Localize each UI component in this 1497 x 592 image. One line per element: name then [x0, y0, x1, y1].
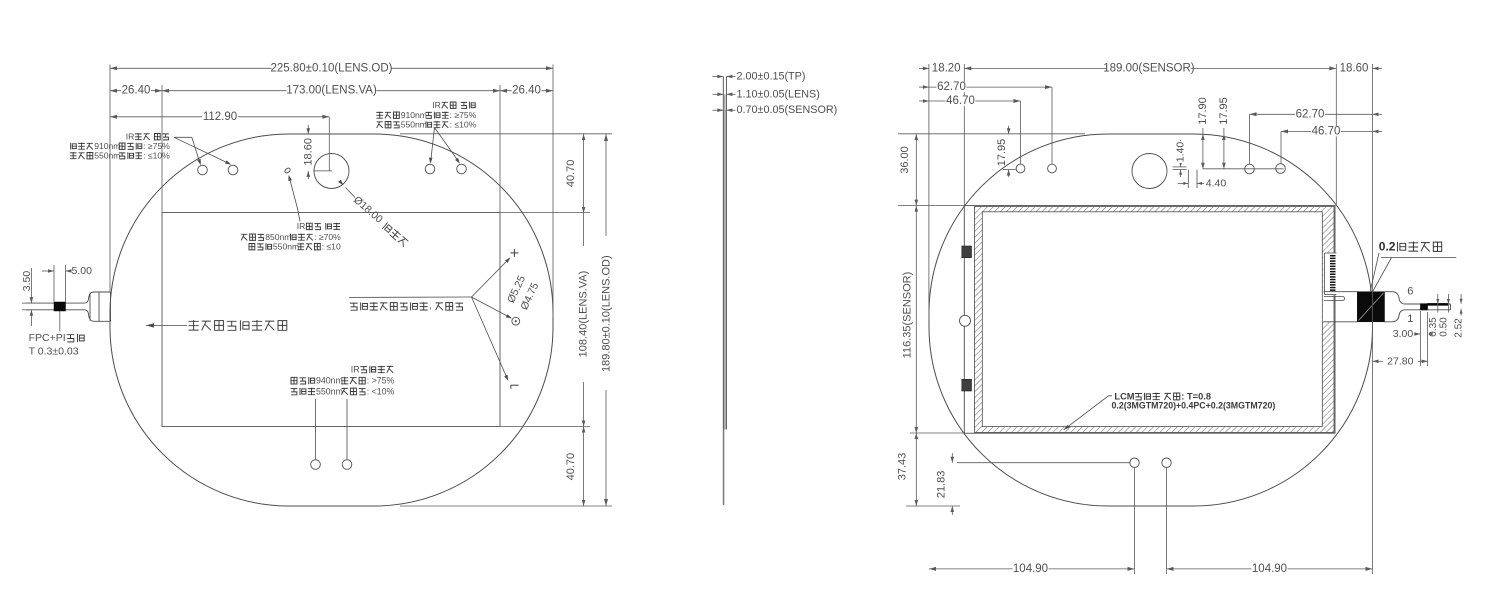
svg-text:T 0.3±0.03: T 0.3±0.03 [29, 346, 79, 358]
svg-text:27.80: 27.80 [1387, 355, 1413, 367]
svg-text:17.95: 17.95 [1218, 97, 1230, 125]
svg-text:46.70: 46.70 [1312, 125, 1341, 137]
svg-text:910nm: 910nm [401, 110, 427, 120]
svg-text:3.00: 3.00 [1393, 328, 1414, 340]
svg-text:112.90: 112.90 [203, 111, 237, 123]
svg-text:IR: IR [297, 221, 306, 231]
svg-text:116.35(SENSOR): 116.35(SENSOR) [901, 272, 913, 359]
svg-text:104.90: 104.90 [1252, 563, 1287, 575]
svg-text:46.70: 46.70 [946, 95, 975, 107]
svg-text:40.70: 40.70 [565, 160, 577, 188]
svg-text:940nm: 940nm [316, 376, 343, 386]
svg-text:850nm: 850nm [265, 232, 291, 242]
svg-text:18.20: 18.20 [932, 62, 961, 74]
svg-text:,: , [429, 301, 432, 312]
svg-text:0.70±0.05(SENSOR): 0.70±0.05(SENSOR) [737, 104, 838, 116]
svg-text:1.10±0.05(LENS): 1.10±0.05(LENS) [737, 88, 820, 100]
svg-text:173.00(LENS.VA): 173.00(LENS.VA) [286, 85, 377, 97]
svg-text:18.60: 18.60 [302, 138, 314, 166]
svg-text:: ≥75%: : ≥75% [450, 110, 477, 120]
svg-text:6: 6 [1407, 286, 1413, 298]
svg-text:: ≤10: : ≤10 [322, 242, 341, 252]
svg-text:104.90: 104.90 [1013, 563, 1048, 575]
svg-text:17.90: 17.90 [1197, 97, 1209, 125]
svg-text:3.50: 3.50 [21, 271, 33, 292]
svg-text:: <10%: : <10% [367, 386, 395, 396]
svg-text:0.2: 0.2 [1379, 240, 1396, 254]
svg-text:18.60: 18.60 [1340, 62, 1369, 74]
svg-text:IR: IR [126, 132, 135, 142]
svg-text:: ≤10%: : ≤10% [450, 120, 477, 130]
svg-text:37.43: 37.43 [897, 453, 909, 481]
svg-text:0.35: 0.35 [1428, 317, 1439, 337]
svg-text:2.52: 2.52 [1453, 318, 1464, 338]
svg-text:17.95: 17.95 [996, 139, 1008, 167]
svg-text:0.2(3MGTM720)+0.4PC+0.2(3MGTM7: 0.2(3MGTM720)+0.4PC+0.2(3MGTM720) [1112, 401, 1276, 411]
svg-text:225.80±0.10(LENS.OD): 225.80±0.10(LENS.OD) [270, 62, 392, 74]
svg-text:550nm: 550nm [401, 120, 427, 130]
svg-text:: ≥70%: : ≥70% [314, 232, 341, 242]
svg-text:62.70: 62.70 [1296, 108, 1325, 120]
svg-text:1.40: 1.40 [1175, 142, 1187, 163]
svg-text:IR: IR [432, 100, 441, 110]
svg-text:189.00(SENSOR): 189.00(SENSOR) [1103, 62, 1195, 74]
svg-text:108.40(LENS.VA): 108.40(LENS.VA) [578, 271, 590, 358]
svg-text:2.00±0.15(TP): 2.00±0.15(TP) [737, 71, 806, 83]
svg-text:0.50: 0.50 [1439, 317, 1450, 337]
svg-text:550nm: 550nm [273, 242, 299, 252]
svg-text:189.80±0.10(LENS.OD): 189.80±0.10(LENS.OD) [601, 255, 613, 372]
svg-text:: ≤10%: : ≤10% [143, 151, 170, 161]
svg-text:1: 1 [1407, 313, 1413, 325]
svg-text:910nm: 910nm [94, 141, 120, 151]
svg-text:FPC+PI: FPC+PI [29, 332, 66, 344]
svg-text:21.83: 21.83 [936, 471, 948, 499]
svg-text:: ≥75%: : ≥75% [143, 141, 170, 151]
svg-text:550nm: 550nm [316, 386, 343, 396]
svg-text:26.40: 26.40 [122, 85, 151, 97]
svg-text:: >75%: : >75% [367, 376, 395, 386]
svg-text:IR: IR [351, 364, 360, 374]
svg-text:62.70: 62.70 [937, 81, 966, 93]
svg-text:36.00: 36.00 [899, 146, 911, 174]
svg-text:4.40: 4.40 [1206, 177, 1227, 189]
svg-text:5.00: 5.00 [72, 265, 93, 277]
svg-text:26.40: 26.40 [512, 85, 541, 97]
svg-text:40.70: 40.70 [565, 453, 577, 481]
svg-text:550nm: 550nm [94, 151, 120, 161]
